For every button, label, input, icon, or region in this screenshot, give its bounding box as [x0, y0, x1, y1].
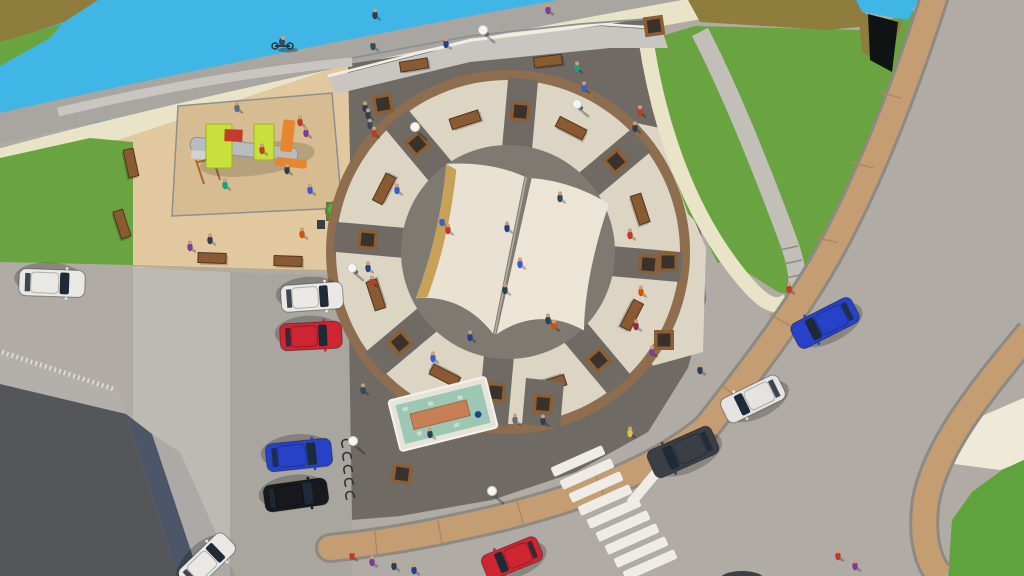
planter-soil	[513, 104, 527, 118]
person-head	[503, 283, 507, 287]
lamp-globe	[347, 263, 356, 272]
planter-soil	[662, 256, 675, 269]
person-head	[308, 183, 312, 187]
planter-soil	[375, 96, 390, 111]
ring-planter	[638, 253, 660, 275]
person-head	[518, 257, 522, 261]
person-head	[628, 426, 632, 430]
person-head	[582, 81, 586, 85]
person-head	[552, 319, 556, 323]
car-rear-glass	[25, 273, 31, 292]
planter-soil	[658, 334, 671, 347]
car-rear-glass	[285, 328, 291, 347]
person-head	[541, 414, 545, 418]
person-head	[638, 105, 642, 109]
lamp-globe	[572, 99, 581, 108]
planter	[532, 393, 553, 414]
car-windshield	[319, 285, 329, 307]
person-head	[431, 351, 435, 355]
person-head	[468, 330, 472, 334]
person-head	[505, 221, 509, 225]
plaza-scene	[0, 0, 1024, 576]
person-head	[639, 285, 643, 289]
person-head	[558, 191, 562, 195]
person-head	[366, 261, 370, 265]
planter-soil	[360, 233, 374, 247]
planter	[654, 330, 674, 350]
person-head	[208, 233, 212, 237]
person-head	[428, 427, 432, 431]
person-head	[223, 178, 227, 182]
person-head	[300, 227, 304, 231]
person-head	[366, 108, 370, 112]
person-head	[392, 559, 396, 563]
person-head	[698, 363, 702, 367]
car-roof	[277, 444, 307, 468]
person-head	[575, 61, 579, 65]
person-head	[650, 345, 654, 349]
person-head	[350, 549, 354, 553]
person-head	[633, 121, 637, 125]
car-roof	[291, 325, 318, 347]
person-head	[446, 223, 450, 227]
bench-seat	[198, 253, 226, 264]
person-head	[634, 319, 638, 323]
person-head	[836, 549, 840, 553]
person-head	[440, 215, 444, 219]
person-head	[395, 183, 399, 187]
person-head	[188, 240, 192, 244]
person-head	[370, 275, 374, 279]
person-head	[260, 143, 264, 147]
person-head	[546, 3, 550, 7]
person-head	[304, 126, 308, 130]
bench	[274, 256, 304, 269]
ring-planter	[357, 229, 379, 251]
person-head	[361, 383, 365, 387]
lamp-globe	[348, 436, 357, 445]
planter	[658, 252, 678, 272]
person-head	[628, 228, 632, 232]
trash-bin	[317, 220, 325, 229]
person-head	[372, 126, 376, 130]
bench	[198, 253, 228, 266]
person-head	[546, 313, 550, 317]
climbing-panel	[224, 129, 242, 142]
person-head	[412, 563, 416, 567]
planter-soil	[641, 257, 655, 271]
person-head	[787, 282, 791, 286]
planter	[643, 15, 666, 38]
bench-seat	[274, 256, 302, 267]
lamp-globe	[410, 122, 419, 131]
lamp-globe	[478, 25, 487, 34]
ring-planter	[509, 101, 531, 123]
aerial-render	[0, 0, 1024, 576]
car-roof	[274, 484, 303, 508]
person-head	[853, 559, 857, 563]
grass-left	[0, 138, 133, 265]
planter-soil	[395, 467, 410, 482]
person-head	[444, 37, 448, 41]
person-head	[298, 115, 302, 119]
car-roof	[291, 286, 318, 308]
person-head	[235, 101, 239, 105]
planter	[371, 92, 394, 115]
person-head	[371, 39, 375, 43]
planter-soil	[647, 19, 662, 34]
planter	[391, 463, 414, 486]
person-head	[513, 413, 517, 417]
planter-soil	[536, 397, 550, 411]
cyclist-head	[281, 36, 285, 40]
person-head	[373, 8, 377, 12]
airplane-wing-right	[254, 124, 274, 160]
person-head	[370, 555, 374, 559]
lamp-globe	[487, 486, 496, 495]
parking-strip	[230, 272, 352, 576]
car-roof	[31, 272, 59, 293]
car-windshield	[60, 272, 70, 294]
person-head	[285, 163, 289, 167]
airplane-tail	[191, 150, 206, 159]
car-windshield	[318, 324, 328, 346]
person-head	[363, 101, 367, 105]
